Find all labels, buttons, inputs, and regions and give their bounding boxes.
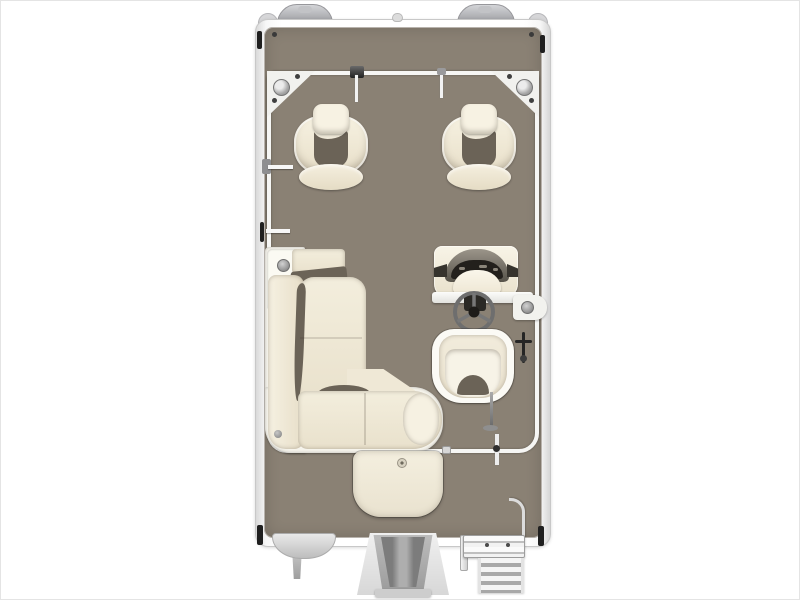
- helm-cup-holder-icon: [521, 301, 534, 314]
- floorplan-canvas: [0, 0, 800, 600]
- gauge-icon: [479, 265, 487, 268]
- bow-gate-hinge: [437, 68, 446, 75]
- starboard-pedestal-chair: [442, 104, 516, 192]
- ladder-grab-handle: [509, 498, 525, 538]
- latch-knob-icon: [493, 445, 500, 452]
- chair-backrest: [313, 104, 349, 134]
- mooring-cleat-icon: [257, 525, 263, 545]
- port-pedestal-chair: [294, 104, 368, 192]
- cushion-seam: [300, 337, 362, 339]
- bolt-icon: [272, 98, 277, 103]
- pedestal-socket-icon: [516, 79, 533, 96]
- bolt-icon: [506, 543, 510, 547]
- bolt-icon: [529, 98, 534, 103]
- pedestal-socket-icon: [273, 79, 290, 96]
- bolt-icon: [485, 543, 489, 547]
- port-side-gate-bar: [266, 229, 290, 233]
- ski-tow-pylon: [490, 392, 493, 429]
- cushion-seam: [364, 393, 366, 445]
- cup-holder-icon: [277, 259, 290, 272]
- ski-tow-pylon-base: [483, 425, 498, 431]
- port-side-gate-latch: [260, 222, 264, 242]
- rail-fitting-icon: [442, 446, 451, 454]
- chair-front-cushion: [447, 164, 511, 190]
- boarding-ladder: [463, 535, 525, 558]
- mooring-cleat-icon: [257, 31, 262, 49]
- bow-nav-light-icon: [392, 13, 403, 22]
- deck-screw-icon: [529, 32, 534, 37]
- deck-screw-icon: [274, 430, 282, 438]
- bolt-icon: [295, 74, 300, 79]
- bow-gate-post: [440, 75, 443, 98]
- gauge-icon: [493, 268, 498, 271]
- bolt-icon: [507, 74, 512, 79]
- cleat-icon: [478, 6, 492, 13]
- deck-screw-icon: [272, 32, 277, 37]
- gauge-icon: [459, 267, 465, 270]
- latch-knob-icon: [520, 355, 527, 362]
- outboard-motor-base: [375, 589, 431, 597]
- port-stern-pontoon-cap: [272, 533, 336, 559]
- ladder-steps: [478, 558, 524, 593]
- hatch-grommet-icon: [397, 458, 407, 468]
- port-side-gate-bar: [268, 165, 293, 169]
- chair-front-cushion: [299, 164, 363, 190]
- cleat-icon: [298, 6, 312, 13]
- chair-backrest: [461, 104, 497, 134]
- mooring-cleat-icon: [540, 35, 545, 53]
- starboard-gate-latch-bar: [515, 340, 532, 343]
- mooring-cleat-icon: [538, 526, 544, 546]
- bow-gate-post: [355, 75, 358, 102]
- lounge-arm-end: [403, 393, 439, 445]
